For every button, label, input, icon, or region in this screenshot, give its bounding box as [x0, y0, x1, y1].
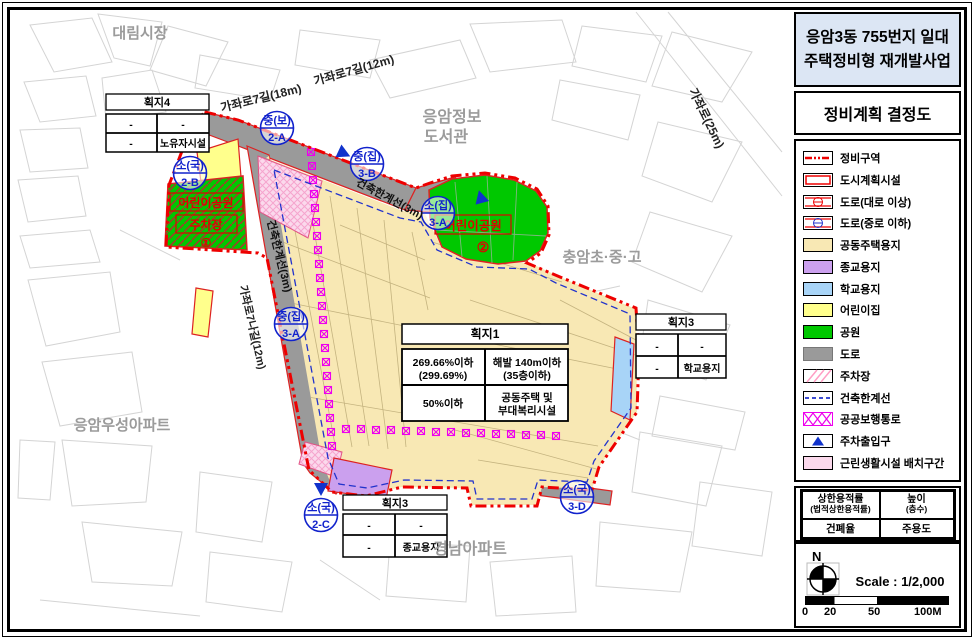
inner-frame — [7, 7, 967, 632]
plan-sheet: 어린이공원 주차장 ① 어린이공원 ② — [0, 0, 974, 639]
